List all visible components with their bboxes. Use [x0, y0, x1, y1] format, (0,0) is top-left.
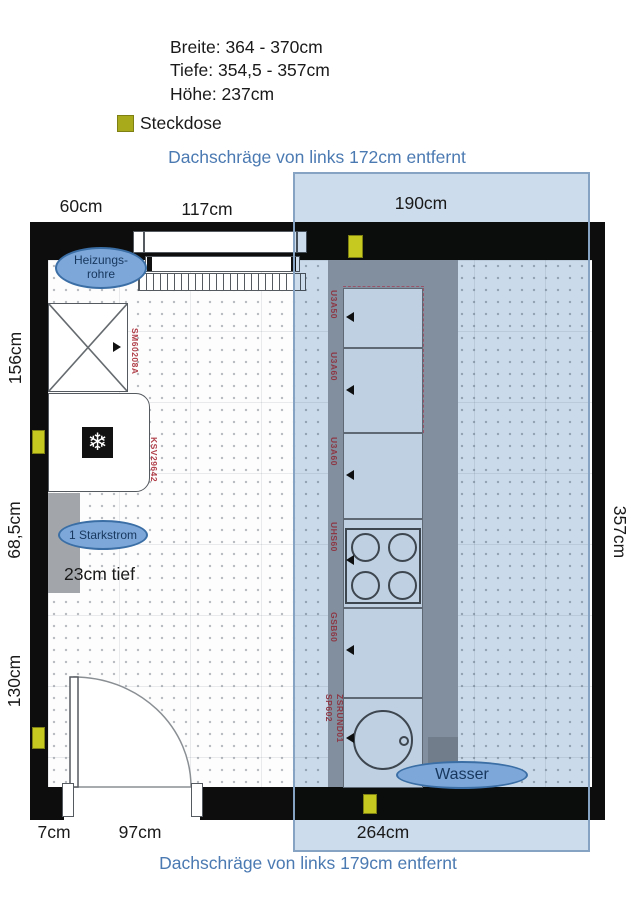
dim-left-156: 156cm: [5, 316, 25, 400]
dim-left-68-5: 68,5cm: [4, 488, 24, 572]
spec-hoehe: Höhe: 237cm: [170, 83, 330, 106]
slope-note-bottom: Dachschräge von links 179cm entfernt: [159, 853, 457, 874]
steckdose-legend-label: Steckdose: [140, 112, 222, 135]
wall-bottom-left-stub: [30, 787, 64, 820]
kitchen-floorplan: Breite: 364 - 370cm Tiefe: 354,5 - 357cm…: [0, 0, 637, 900]
fridge-label: KSV29642: [149, 437, 159, 482]
door-post-right: [191, 783, 203, 817]
dim-bottom-7: 7cm: [37, 822, 70, 843]
heizungsrohre-line1: Heizungs-: [74, 254, 128, 268]
sideboard-label: SM60208A: [130, 328, 140, 375]
starkstrom-label: 1 Starkstrom: [69, 528, 137, 542]
door-hinge-marker: [113, 342, 121, 352]
wall-right: [592, 222, 605, 820]
ledge-depth-label: 23cm tief: [64, 563, 135, 586]
radiator: [138, 273, 306, 291]
steckdose-marker: [348, 235, 363, 258]
slope-note-top: Dachschräge von links 172cm entfernt: [168, 147, 466, 168]
dim-left-130: 130cm: [4, 639, 24, 723]
dim-right-357: 357cm: [610, 490, 630, 574]
steckdose-marker: [32, 430, 45, 454]
wasser-callout: Wasser: [396, 761, 528, 789]
door-swing: [60, 672, 200, 791]
steckdose-legend-icon: [117, 115, 134, 132]
heizungsrohre-line2: rohre: [87, 268, 115, 282]
heizungsrohre-callout: Heizungs- rohre: [55, 247, 147, 289]
window-post-left: [143, 232, 145, 252]
roof-slope-overlay-border: [293, 172, 590, 852]
starkstrom-callout: 1 Starkstrom: [58, 520, 148, 550]
door-post-left: [62, 783, 74, 817]
window: [133, 231, 307, 253]
snowflake-icon: ❄: [82, 427, 113, 458]
steckdose-marker: [363, 794, 377, 814]
sill-post-left: [147, 257, 152, 271]
dim-bottom-97: 97cm: [119, 822, 162, 843]
steckdose-marker: [32, 727, 45, 749]
window-sill: [145, 256, 300, 272]
wasser-label: Wasser: [435, 766, 489, 784]
dim-top-190: 190cm: [395, 193, 448, 214]
spec-tiefe: Tiefe: 354,5 - 357cm: [170, 59, 330, 82]
room-specs: Breite: 364 - 370cm Tiefe: 354,5 - 357cm…: [170, 36, 330, 106]
dim-top-117: 117cm: [181, 199, 232, 220]
dim-top-60: 60cm: [60, 196, 103, 217]
dim-bottom-264: 264cm: [357, 822, 410, 843]
spec-breite: Breite: 364 - 370cm: [170, 36, 330, 59]
